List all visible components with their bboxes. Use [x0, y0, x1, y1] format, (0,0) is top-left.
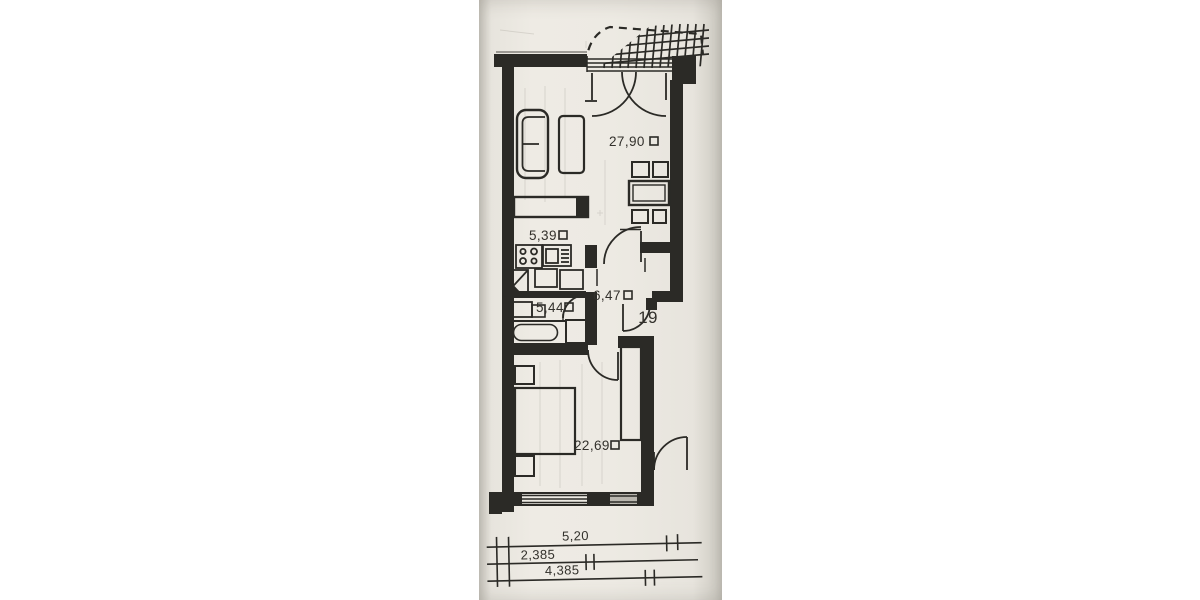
dining-chair — [653, 210, 666, 223]
dining-table-inner — [633, 185, 665, 201]
kitchen-fixtures — [504, 197, 588, 296]
dimension-partial-a-label: 2,385 — [520, 547, 555, 563]
dining-chair — [632, 162, 649, 177]
bed — [515, 388, 575, 454]
bathtub — [510, 321, 566, 344]
bedroom-door — [588, 350, 618, 380]
scanned-floor-plan-page: 27,90 5,39 6,47 5,44 22,69 19 — [0, 0, 1200, 600]
square-meter-box — [650, 137, 658, 145]
nightstand — [515, 366, 534, 384]
living-room-area-label: 27,90 — [609, 134, 645, 149]
kitchen-sink — [543, 245, 571, 266]
dimension-lines: 5,20 2,385 4,385 — [486, 526, 702, 589]
nightstand — [515, 456, 534, 476]
wall-right-bedroom — [641, 344, 654, 506]
bath-door — [563, 295, 586, 320]
dimension-line-overall — [487, 543, 702, 548]
bath-area-label: 5,44 — [536, 300, 564, 315]
kitchen-cabinet — [535, 269, 557, 287]
living-hall-door — [604, 227, 641, 264]
coffee-table — [559, 116, 584, 173]
square-meter-box — [611, 441, 619, 449]
bedroom-area-label: 22,69 — [574, 438, 610, 453]
corridor-door-outside — [654, 437, 687, 470]
sofa-cushions — [523, 117, 546, 171]
cooktop — [516, 245, 542, 268]
balcony-door-right — [622, 72, 666, 116]
wall-top-right-corner — [672, 56, 696, 84]
living-room-furniture — [517, 110, 669, 223]
dimension-extension-tick — [508, 537, 509, 587]
wardrobe — [621, 347, 641, 440]
dining-chair — [653, 162, 668, 177]
kitchen-area-label: 5,39 — [529, 228, 557, 243]
square-meter-box — [559, 231, 567, 239]
kitchen-cabinet — [560, 270, 583, 289]
toilet-or-washer — [566, 320, 586, 343]
floor-plan-drawing: 27,90 5,39 6,47 5,44 22,69 19 — [0, 0, 1200, 600]
dimension-overall-label: 5,20 — [562, 528, 589, 544]
wall-right-living — [670, 80, 683, 302]
window-bedroom-2 — [610, 494, 637, 504]
dimension-line-partial-b — [487, 577, 702, 582]
apartment-number-label: 19 — [638, 308, 658, 327]
dimension-partial-b-label: 4,385 — [545, 562, 580, 578]
square-meter-box — [624, 291, 632, 299]
dimension-line-partial-a — [487, 560, 698, 564]
hall-area-label: 6,47 — [593, 288, 621, 303]
wall-hall-niche-top — [640, 242, 683, 253]
wall-bottom-left-block — [489, 492, 502, 514]
wall-kitchen-hall — [585, 245, 597, 268]
dimension-extension-tick — [496, 537, 497, 587]
wall-counter-end — [576, 197, 588, 217]
wall-bath-bedroom — [502, 344, 588, 355]
dining-chair — [632, 210, 648, 223]
dining-set — [629, 162, 669, 223]
bedroom-furniture — [515, 347, 641, 476]
window-bedroom-1 — [522, 494, 587, 504]
